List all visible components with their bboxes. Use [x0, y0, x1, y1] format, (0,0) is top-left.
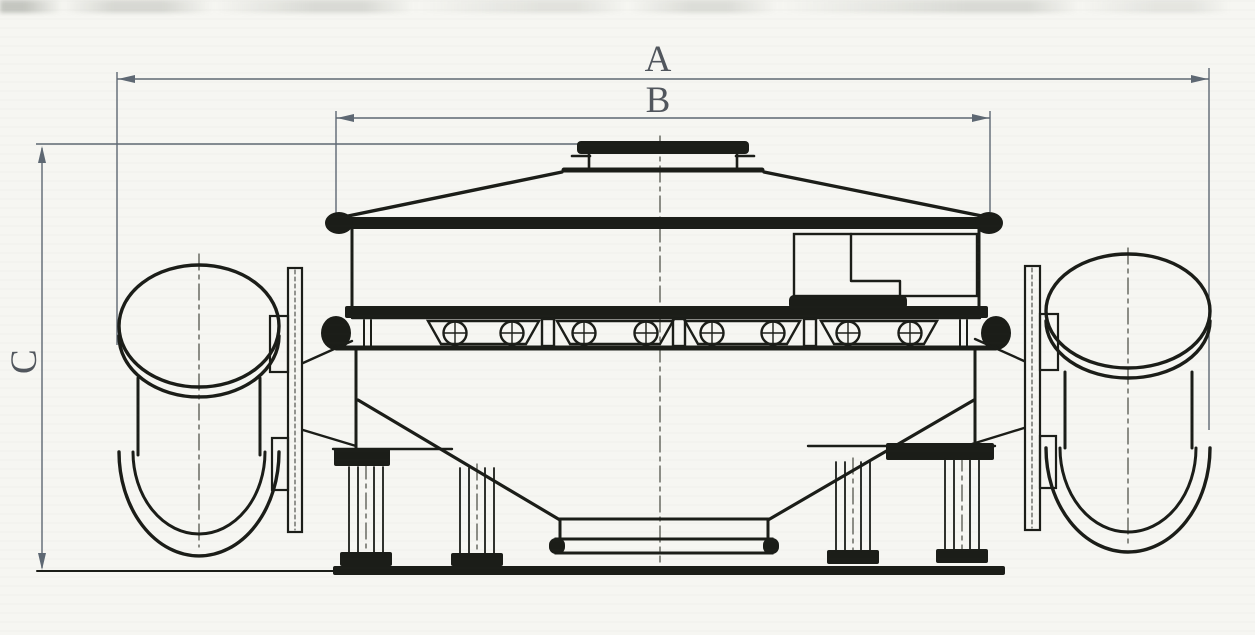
foot-pad-3 [827, 550, 879, 564]
clamp-band [336, 318, 996, 348]
clamp-post-1 [542, 319, 554, 346]
cone-walls [358, 400, 974, 520]
foot-pad-2 [451, 553, 503, 566]
bolt-cross-marks [444, 322, 921, 344]
inlet-flange-bar [577, 141, 749, 154]
label-dim-c: C [4, 349, 45, 374]
arrow-b-right [972, 114, 989, 122]
ground-bar [333, 566, 1005, 575]
housing-base-bar [789, 295, 907, 310]
machine-drawing [37, 136, 1210, 575]
inlet-neck-walls [589, 154, 737, 168]
mount-pad-left [334, 448, 390, 466]
arrow-b-left [337, 114, 354, 122]
clamp-lock-ticks-left [364, 320, 371, 346]
arrow-a-right [1191, 75, 1208, 83]
clamp-lock-ticks-right [960, 320, 967, 346]
foot-pad-1 [340, 552, 392, 566]
foot-pad-4 [936, 549, 988, 563]
motor-housing-box [794, 234, 977, 296]
arrow-c-top [38, 146, 46, 163]
filled-parts [321, 141, 1011, 575]
leg-centerlines [366, 455, 962, 558]
body-top-rim [345, 217, 988, 229]
clamp-post-3 [804, 319, 816, 346]
clamp-post-2 [673, 319, 685, 346]
housing-outline [794, 234, 977, 296]
arrow-c-bottom [38, 553, 46, 570]
discharge-cone [358, 400, 974, 553]
housing-step [851, 234, 900, 296]
struts-right [972, 339, 1024, 444]
struts-left [303, 341, 356, 446]
label-dim-b: B [646, 80, 671, 121]
screening-machine-diagram: A B C [0, 0, 1255, 635]
discharge-outlet-flange [556, 539, 772, 553]
lid-cone [348, 172, 982, 216]
technical-drawing-canvas: A B C [0, 0, 1255, 635]
plate-right [1025, 266, 1040, 530]
discharge-outlet-upper [560, 519, 768, 539]
clamp-bead-left [321, 316, 351, 350]
inlet-neck [564, 154, 762, 170]
clamp-bolts [444, 322, 922, 345]
arrow-a-left [118, 75, 135, 83]
left-mount-plate [270, 268, 356, 532]
label-dim-a: A [645, 39, 672, 80]
